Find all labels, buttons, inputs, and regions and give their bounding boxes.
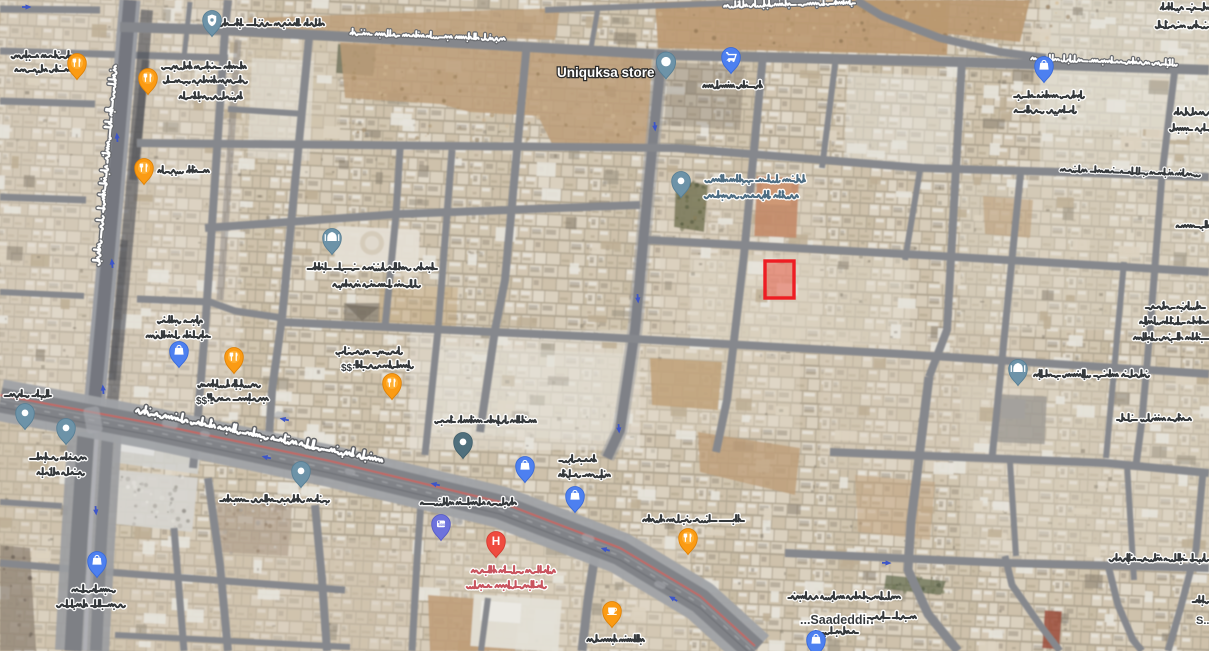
svg-text:$$·: $$· <box>196 396 210 407</box>
svg-text:Uniquksa store: Uniquksa store <box>557 65 655 80</box>
svg-text:S...: S... <box>1196 615 1209 627</box>
svg-text:...Saadeddin: ...Saadeddin <box>800 613 874 627</box>
svg-text:$$·: $$· <box>341 363 355 374</box>
svg-text:500: 500 <box>439 522 446 527</box>
svg-text:H: H <box>492 535 501 548</box>
